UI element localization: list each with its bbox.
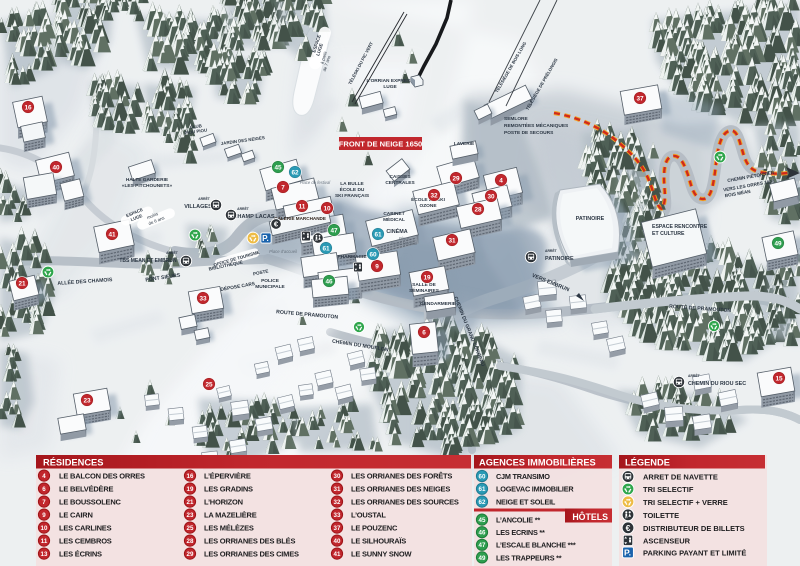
svg-text:6: 6 <box>42 486 46 493</box>
svg-text:LE CAIRN: LE CAIRN <box>59 511 93 520</box>
svg-text:45: 45 <box>274 164 282 171</box>
svg-text:45: 45 <box>479 517 486 524</box>
svg-text:NEIGE ET SOLEIL: NEIGE ET SOLEIL <box>496 498 556 507</box>
svg-text:9: 9 <box>42 512 46 519</box>
svg-text:OZONE: OZONE <box>419 203 437 209</box>
svg-text:ASCENSEUR: ASCENSEUR <box>643 536 691 545</box>
svg-text:ET CULTURE: ET CULTURE <box>652 231 685 237</box>
svg-text:30: 30 <box>487 193 495 200</box>
svg-text:LAVERIE: LAVERIE <box>454 141 475 147</box>
svg-text:41: 41 <box>108 231 116 238</box>
svg-text:11: 11 <box>299 203 306 210</box>
svg-text:ARRÊT: ARRÊT <box>166 250 179 255</box>
svg-text:ARRÊT: ARRÊT <box>237 206 250 211</box>
svg-text:62: 62 <box>479 499 486 506</box>
svg-text:28: 28 <box>474 206 482 213</box>
svg-text:33: 33 <box>334 512 341 519</box>
svg-text:École Médical: École Médical <box>391 241 418 246</box>
svg-text:60: 60 <box>479 473 486 480</box>
svg-text:31: 31 <box>334 486 341 493</box>
svg-text:41: 41 <box>334 551 341 558</box>
svg-text:61: 61 <box>374 231 382 238</box>
svg-text:7: 7 <box>42 499 46 506</box>
svg-text:LE BOUSSOLENC: LE BOUSSOLENC <box>59 498 122 507</box>
svg-text:MUNICIPALE: MUNICIPALE <box>255 284 285 290</box>
svg-text:21: 21 <box>187 499 194 506</box>
svg-text:L’ÉPERVIÈRE: L’ÉPERVIÈRE <box>204 472 251 481</box>
svg-text:Place du festival: Place du festival <box>300 180 332 185</box>
svg-text:47: 47 <box>330 227 338 234</box>
svg-text:4: 4 <box>499 177 503 184</box>
svg-text:LES ORRIANES DES FORÊTS: LES ORRIANES DES FORÊTS <box>351 472 452 481</box>
svg-text:LE SILHOURAÏS: LE SILHOURAÏS <box>351 537 406 546</box>
svg-text:LUGE: LUGE <box>383 84 397 90</box>
svg-text:GALERIE MARCHANDE: GALERIE MARCHANDE <box>274 216 326 221</box>
svg-text:25: 25 <box>187 525 194 532</box>
svg-text:POSTE DE SECOURS: POSTE DE SECOURS <box>504 130 554 136</box>
svg-text:CHEMIN DU RIOU SEC: CHEMIN DU RIOU SEC <box>688 381 746 387</box>
svg-text:16: 16 <box>187 473 194 480</box>
svg-text:CENTRALES: CENTRALES <box>385 180 415 186</box>
svg-text:29: 29 <box>187 551 194 558</box>
svg-text:VILLAGES: VILLAGES <box>184 204 212 210</box>
svg-text:CABINET: CABINET <box>383 211 404 217</box>
svg-text:40: 40 <box>52 164 60 171</box>
svg-text:40: 40 <box>334 538 341 545</box>
svg-text:21: 21 <box>18 280 26 287</box>
svg-text:LES MÉLÈZES: LES MÉLÈZES <box>204 524 254 533</box>
svg-text:SEMLORE: SEMLORE <box>504 116 529 122</box>
svg-text:4: 4 <box>42 473 46 480</box>
svg-text:32: 32 <box>430 192 438 199</box>
svg-text:TBS MEAN ET EMBRUN: TBS MEAN ET EMBRUN <box>119 258 177 264</box>
svg-text:LE BALCON DES ORRES: LE BALCON DES ORRES <box>59 472 145 481</box>
svg-text:61: 61 <box>322 245 330 252</box>
svg-text:6: 6 <box>422 329 426 336</box>
svg-text:P.: P. <box>624 547 631 557</box>
svg-text:LE SUNNY SNOW: LE SUNNY SNOW <box>351 550 412 559</box>
svg-text:L’HORIZON: L’HORIZON <box>204 498 243 507</box>
svg-text:46: 46 <box>325 278 333 285</box>
svg-text:10: 10 <box>323 205 331 212</box>
svg-text:LOGEVAC IMMOBILIER: LOGEVAC IMMOBILIER <box>496 485 574 494</box>
svg-text:46: 46 <box>479 530 486 537</box>
svg-text:30: 30 <box>334 473 341 480</box>
svg-text:LA BULLE: LA BULLE <box>340 181 364 187</box>
svg-text:LES ORRIANES DES CIMES: LES ORRIANES DES CIMES <box>204 550 299 559</box>
svg-text:15: 15 <box>775 375 783 382</box>
svg-text:LES ORRIANES DES BLÉS: LES ORRIANES DES BLÉS <box>204 537 295 546</box>
svg-text:23: 23 <box>83 397 91 404</box>
svg-text:LES ECRINS **: LES ECRINS ** <box>496 528 545 537</box>
svg-text:29: 29 <box>452 175 460 182</box>
svg-text:62: 62 <box>291 169 299 176</box>
svg-text:LES ÉCRINS: LES ÉCRINS <box>59 550 102 559</box>
svg-text:TOILETTE: TOILETTE <box>643 511 679 520</box>
svg-text:LES TRAPPEURS **: LES TRAPPEURS ** <box>496 553 562 562</box>
svg-text:ARRET DE NAVETTE: ARRET DE NAVETTE <box>643 473 718 482</box>
svg-text:ARRÊT: ARRÊT <box>545 248 558 253</box>
svg-text:PHARMACIE: PHARMACIE <box>337 254 367 260</box>
svg-text:PARKING PAYANT ET LIMITÉ: PARKING PAYANT ET LIMITÉ <box>643 548 746 557</box>
svg-text:19: 19 <box>187 486 194 493</box>
svg-text:LA MAZELIÈRE: LA MAZELIÈRE <box>204 511 257 520</box>
svg-text:LES CEMBROS: LES CEMBROS <box>59 537 112 546</box>
svg-text:DISTRIBUTEUR DE BILLETS: DISTRIBUTEUR DE BILLETS <box>643 524 745 533</box>
svg-text:19: 19 <box>423 274 431 281</box>
svg-text:61: 61 <box>479 486 486 493</box>
svg-text:60: 60 <box>369 251 377 258</box>
svg-text:16: 16 <box>24 104 32 111</box>
svg-text:ESPACE RENCONTRE: ESPACE RENCONTRE <box>652 224 708 230</box>
svg-text:13: 13 <box>41 551 48 558</box>
svg-text:32: 32 <box>334 499 341 506</box>
svg-text:LES CARLINES: LES CARLINES <box>59 524 112 533</box>
svg-text:49: 49 <box>479 555 486 562</box>
svg-text:28: 28 <box>187 538 194 545</box>
svg-text:LES ORRIANES DES SOURCES: LES ORRIANES DES SOURCES <box>351 498 459 507</box>
svg-text:PATINOIRE: PATINOIRE <box>576 216 605 222</box>
svg-text:LES ORRIANES DES NEIGES: LES ORRIANES DES NEIGES <box>351 485 450 494</box>
svg-text:31: 31 <box>448 237 456 244</box>
svg-text:CINÉMA: CINÉMA <box>386 227 407 235</box>
svg-text:33: 33 <box>199 295 207 302</box>
svg-text:LES GRADINS: LES GRADINS <box>204 485 253 494</box>
svg-text:23: 23 <box>187 512 194 519</box>
svg-text:LE BELVÉDÈRE: LE BELVÉDÈRE <box>59 485 114 494</box>
svg-text:47: 47 <box>479 542 486 549</box>
svg-text:AGENCES IMMOBILIÈRES: AGENCES IMMOBILIÈRES <box>479 457 596 467</box>
svg-text:L'ORRIAN EXPRESS: L'ORRIAN EXPRESS <box>367 78 415 84</box>
svg-text:37: 37 <box>636 95 644 102</box>
svg-text:GENDARMERIE: GENDARMERIE <box>420 301 457 307</box>
svg-text:7: 7 <box>281 184 285 191</box>
svg-text:L’ESCALE BLANCHE ***: L’ESCALE BLANCHE *** <box>496 541 576 550</box>
svg-text:LE POUZENC: LE POUZENC <box>351 524 398 533</box>
svg-text:TRI SELECTIF: TRI SELECTIF <box>643 485 694 494</box>
svg-text:9: 9 <box>375 263 379 270</box>
svg-text:P.: P. <box>262 234 269 243</box>
svg-text:FRONT DE NEIGE 1650: FRONT DE NEIGE 1650 <box>339 140 423 149</box>
svg-text:«LES PITCHOUNETS»: «LES PITCHOUNETS» <box>122 183 173 189</box>
svg-text:37: 37 <box>334 525 341 532</box>
svg-text:RÉSIDENCES: RÉSIDENCES <box>43 457 103 467</box>
svg-text:25: 25 <box>205 381 213 388</box>
svg-text:CJM TRANSIMO: CJM TRANSIMO <box>496 472 550 481</box>
svg-text:L’ANCOLIE **: L’ANCOLIE ** <box>496 516 540 525</box>
svg-text:L’OUSTAL: L’OUSTAL <box>351 511 386 520</box>
svg-text:PATINOIRE: PATINOIRE <box>545 256 574 262</box>
svg-text:HALTE GARDERIE: HALTE GARDERIE <box>126 177 169 183</box>
svg-text:LÉGENDE: LÉGENDE <box>625 457 670 467</box>
svg-text:CHAMP LACAS: CHAMP LACAS <box>233 214 274 220</box>
svg-text:11: 11 <box>41 538 48 545</box>
svg-text:CAISSES: CAISSES <box>389 174 411 180</box>
svg-text:ARRÊT: ARRÊT <box>688 373 701 378</box>
svg-text:SKI FRANÇAIS: SKI FRANÇAIS <box>335 193 370 199</box>
svg-text:POLICE: POLICE <box>261 278 280 284</box>
svg-text:Place d'accueil: Place d'accueil <box>269 249 298 254</box>
svg-text:HÔTELS: HÔTELS <box>572 511 608 522</box>
svg-text:10: 10 <box>41 525 48 532</box>
svg-text:€: € <box>626 523 631 533</box>
svg-text:TRI SELECTIF + VERRE: TRI SELECTIF + VERRE <box>643 498 728 507</box>
svg-text:ARRÊT: ARRÊT <box>198 196 211 201</box>
svg-text:49: 49 <box>774 240 782 247</box>
